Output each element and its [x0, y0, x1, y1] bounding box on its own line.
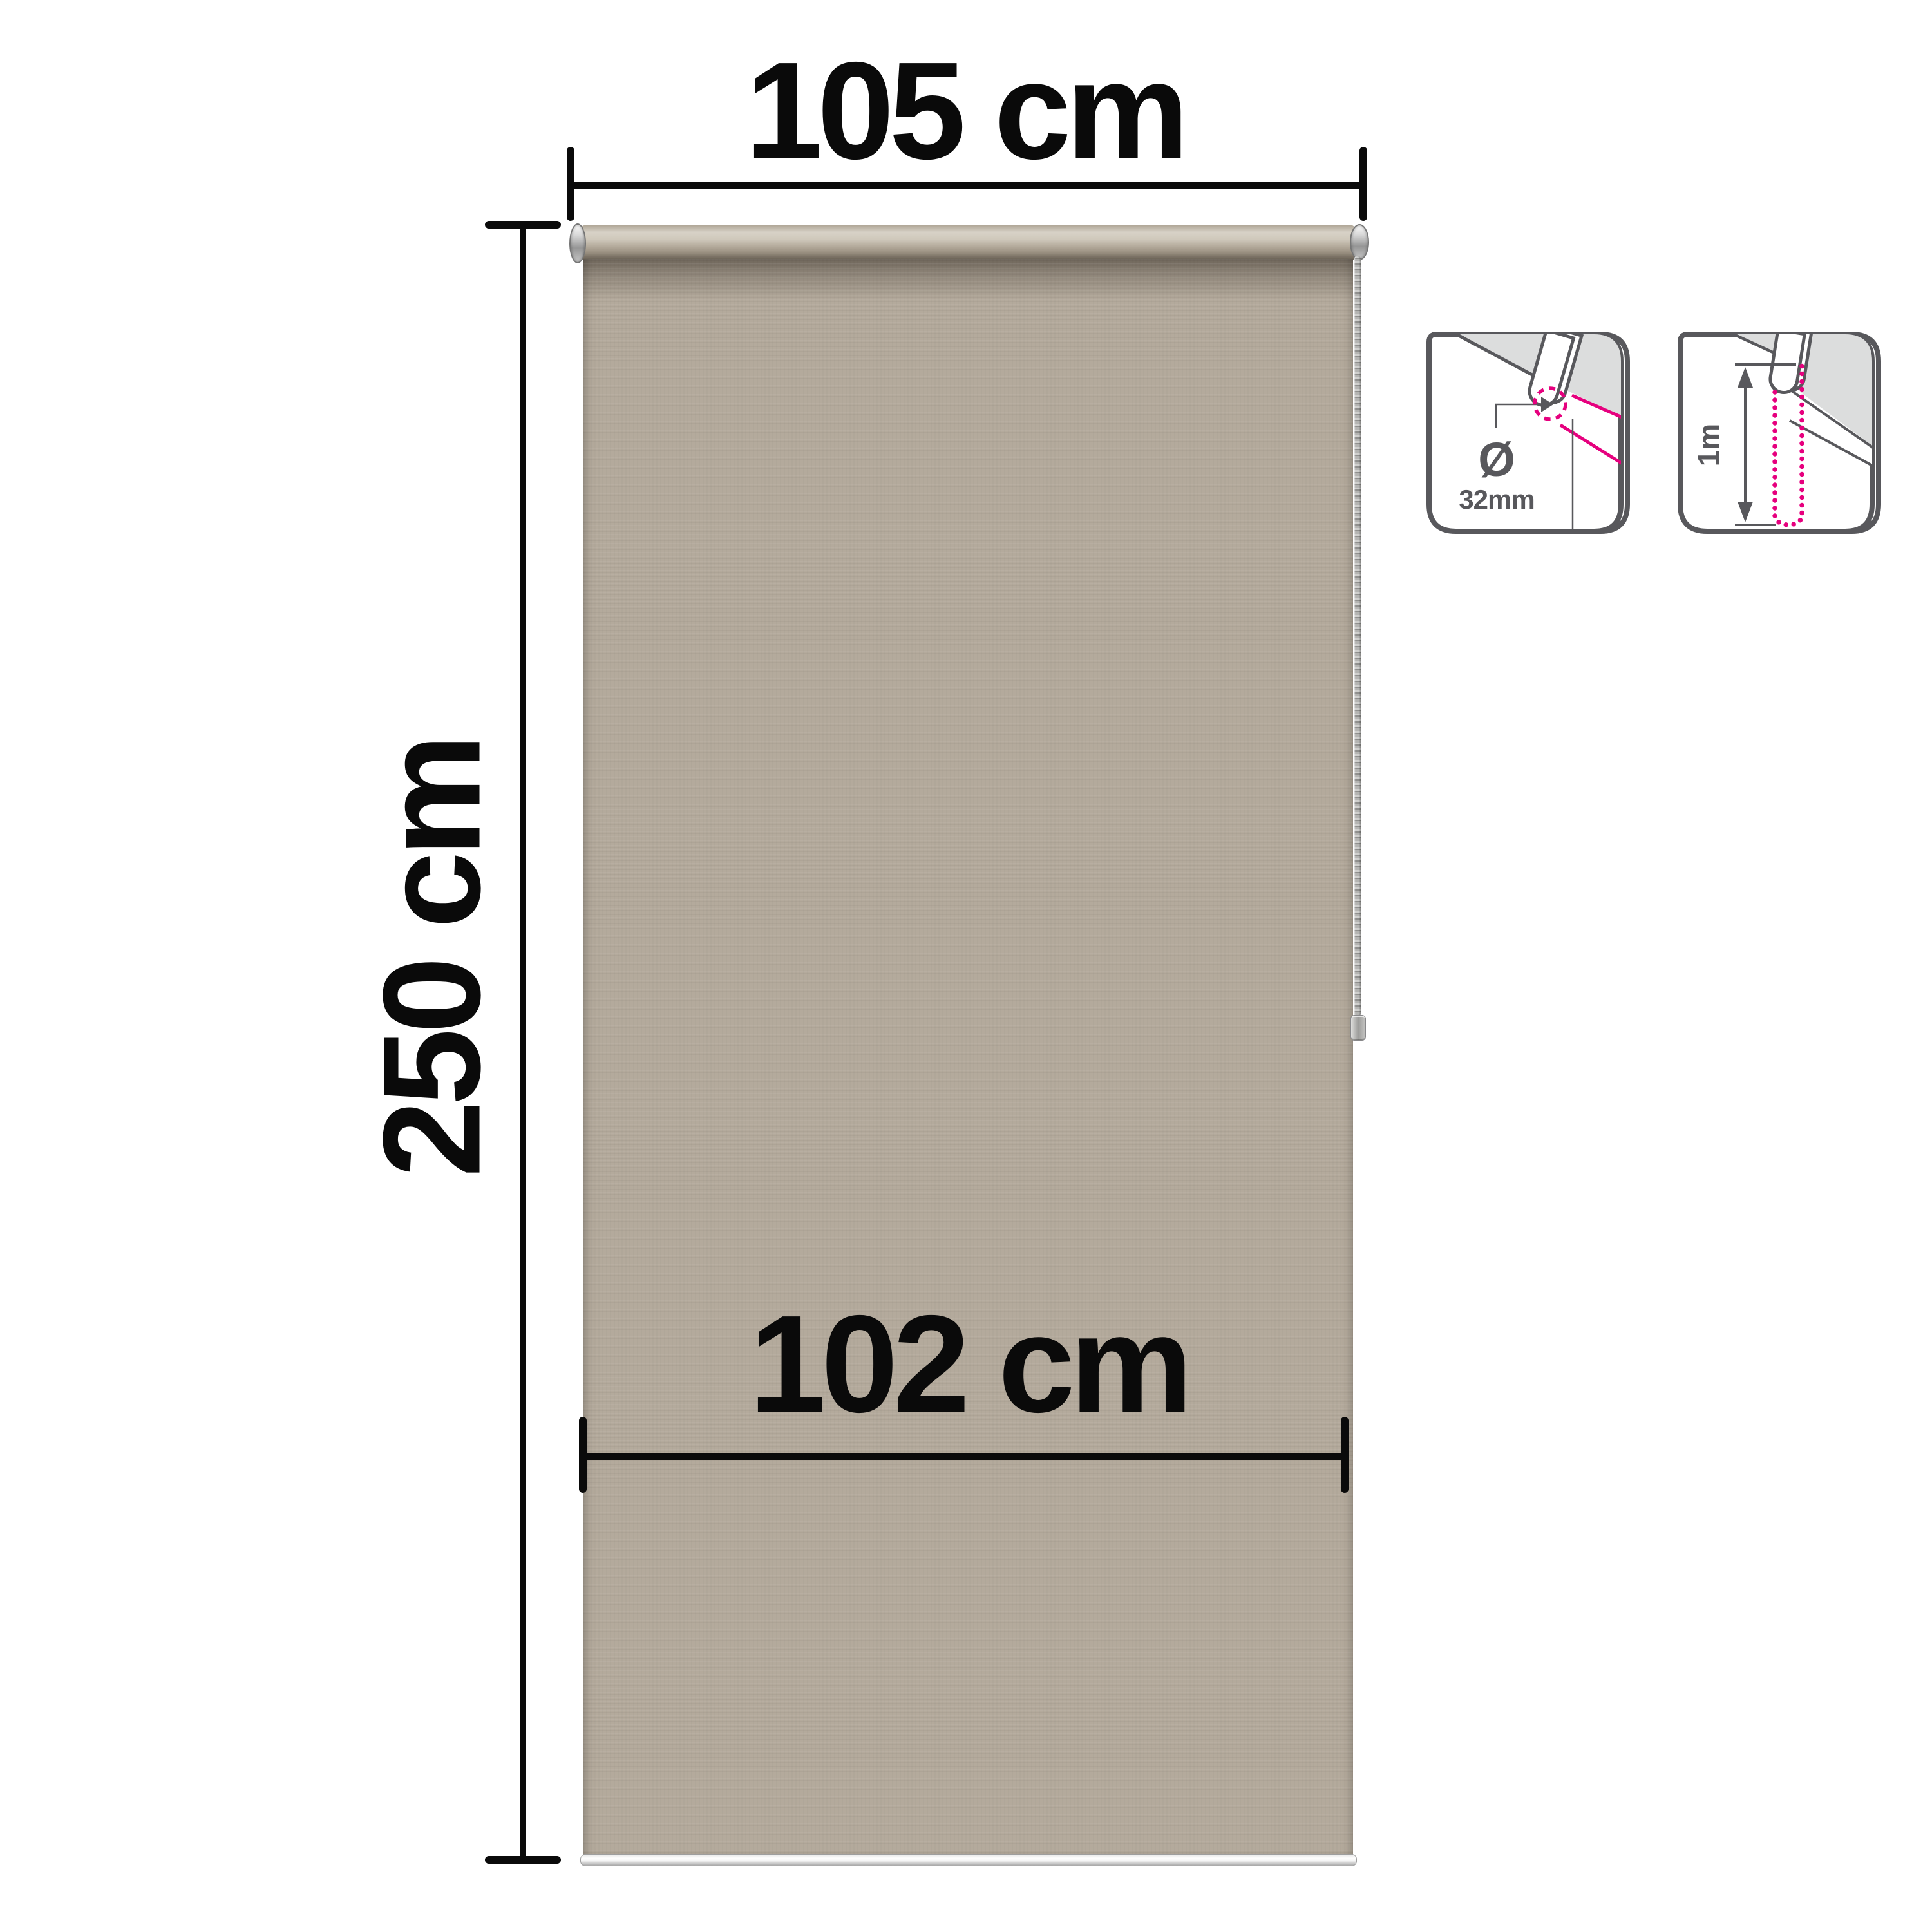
roller-tube — [582, 225, 1354, 260]
tube-end-cap-left — [569, 223, 586, 263]
diameter-value: 32mm — [1459, 484, 1534, 515]
height-dimension-tick-bottom — [485, 1856, 561, 1864]
height-dimension-line — [520, 225, 526, 1860]
width-dimension-line — [571, 182, 1363, 189]
chain-length-value: 1m — [1692, 424, 1725, 466]
diameter-symbol: Ø — [1478, 433, 1515, 486]
tube-end-cap-right — [1350, 224, 1369, 260]
width-dimension-tick-left — [567, 147, 574, 221]
fabric-width-dimension-tick-right — [1341, 1417, 1349, 1493]
fabric-width-dimension-line — [583, 1453, 1345, 1460]
chain-connector — [1350, 1015, 1366, 1041]
height-dimension-label: 250 cm — [363, 636, 501, 1280]
height-dimension-tick-top — [485, 221, 561, 229]
width-dimension-tick-right — [1359, 147, 1367, 221]
width-dimension-label: 105 cm — [643, 41, 1287, 180]
chain-length-icon: 1m — [1670, 330, 1882, 535]
fabric-width-dimension-tick-left — [579, 1417, 587, 1493]
bottom-bar — [580, 1854, 1357, 1866]
bead-chain — [1354, 256, 1361, 1017]
tube-diameter-icon: Ø 32mm — [1419, 330, 1631, 535]
product-dimension-diagram: 105 cm 250 cm 102 cm — [0, 0, 1932, 1932]
fabric-width-dimension-label: 102 cm — [647, 1294, 1291, 1433]
blind-fabric-panel — [583, 259, 1353, 1855]
